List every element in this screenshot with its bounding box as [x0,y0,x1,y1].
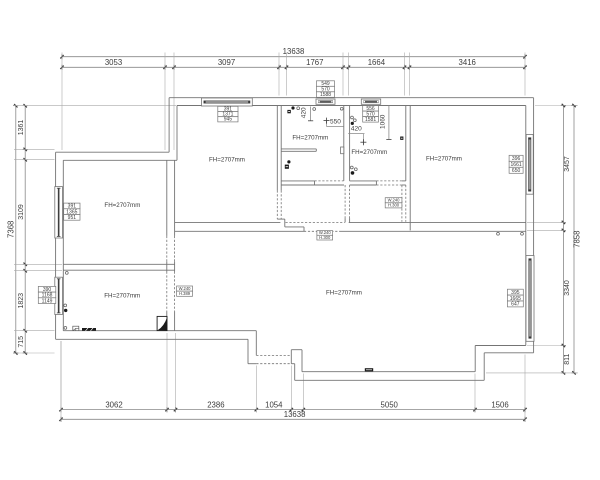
svg-text:FH=2707mm: FH=2707mm [292,135,328,142]
svg-text:1664: 1664 [368,58,386,67]
svg-text:951: 951 [68,215,77,221]
svg-text:H.389: H.389 [179,291,191,296]
svg-text:1054: 1054 [265,400,283,409]
svg-text:3053: 3053 [105,58,122,67]
svg-text:FH=2707mm: FH=2707mm [209,157,245,164]
svg-text:H.300: H.300 [388,203,400,208]
svg-text:7858: 7858 [572,231,581,248]
svg-text:1767: 1767 [306,58,323,67]
svg-text:1823: 1823 [18,293,25,309]
svg-text:FH=2707mm: FH=2707mm [104,202,140,209]
svg-text:647: 647 [511,302,520,308]
svg-text:1588: 1588 [320,92,331,98]
svg-text:13638: 13638 [284,410,306,419]
svg-text:420: 420 [351,126,362,133]
svg-text:1506: 1506 [491,400,508,409]
svg-text:811: 811 [564,354,571,365]
svg-text:3416: 3416 [459,58,476,67]
svg-text:H.300: H.300 [319,235,331,240]
svg-text:7368: 7368 [6,221,15,238]
svg-text:FH=2707mm: FH=2707mm [326,290,362,297]
svg-text:3109: 3109 [18,204,25,220]
svg-text:1361: 1361 [18,120,25,136]
svg-text:550: 550 [330,118,341,125]
svg-text:1149: 1149 [42,298,53,304]
svg-text:420: 420 [300,107,307,118]
svg-text:3457: 3457 [564,156,571,172]
svg-text:3097: 3097 [218,58,235,67]
svg-text:FH=2707mm: FH=2707mm [426,155,462,162]
svg-text:13638: 13638 [283,47,305,56]
svg-text:FH=2707mm: FH=2707mm [104,293,140,300]
svg-text:2386: 2386 [207,400,224,409]
svg-text:1060: 1060 [379,114,386,129]
svg-text:5050: 5050 [381,400,399,409]
svg-text:3340: 3340 [564,280,571,296]
svg-text:FH=2707mm: FH=2707mm [351,149,387,156]
svg-text:1581: 1581 [365,117,376,123]
svg-text:3062: 3062 [105,400,122,409]
svg-text:650: 650 [512,168,521,174]
svg-text:715: 715 [18,336,25,348]
svg-text:945: 945 [224,117,233,123]
